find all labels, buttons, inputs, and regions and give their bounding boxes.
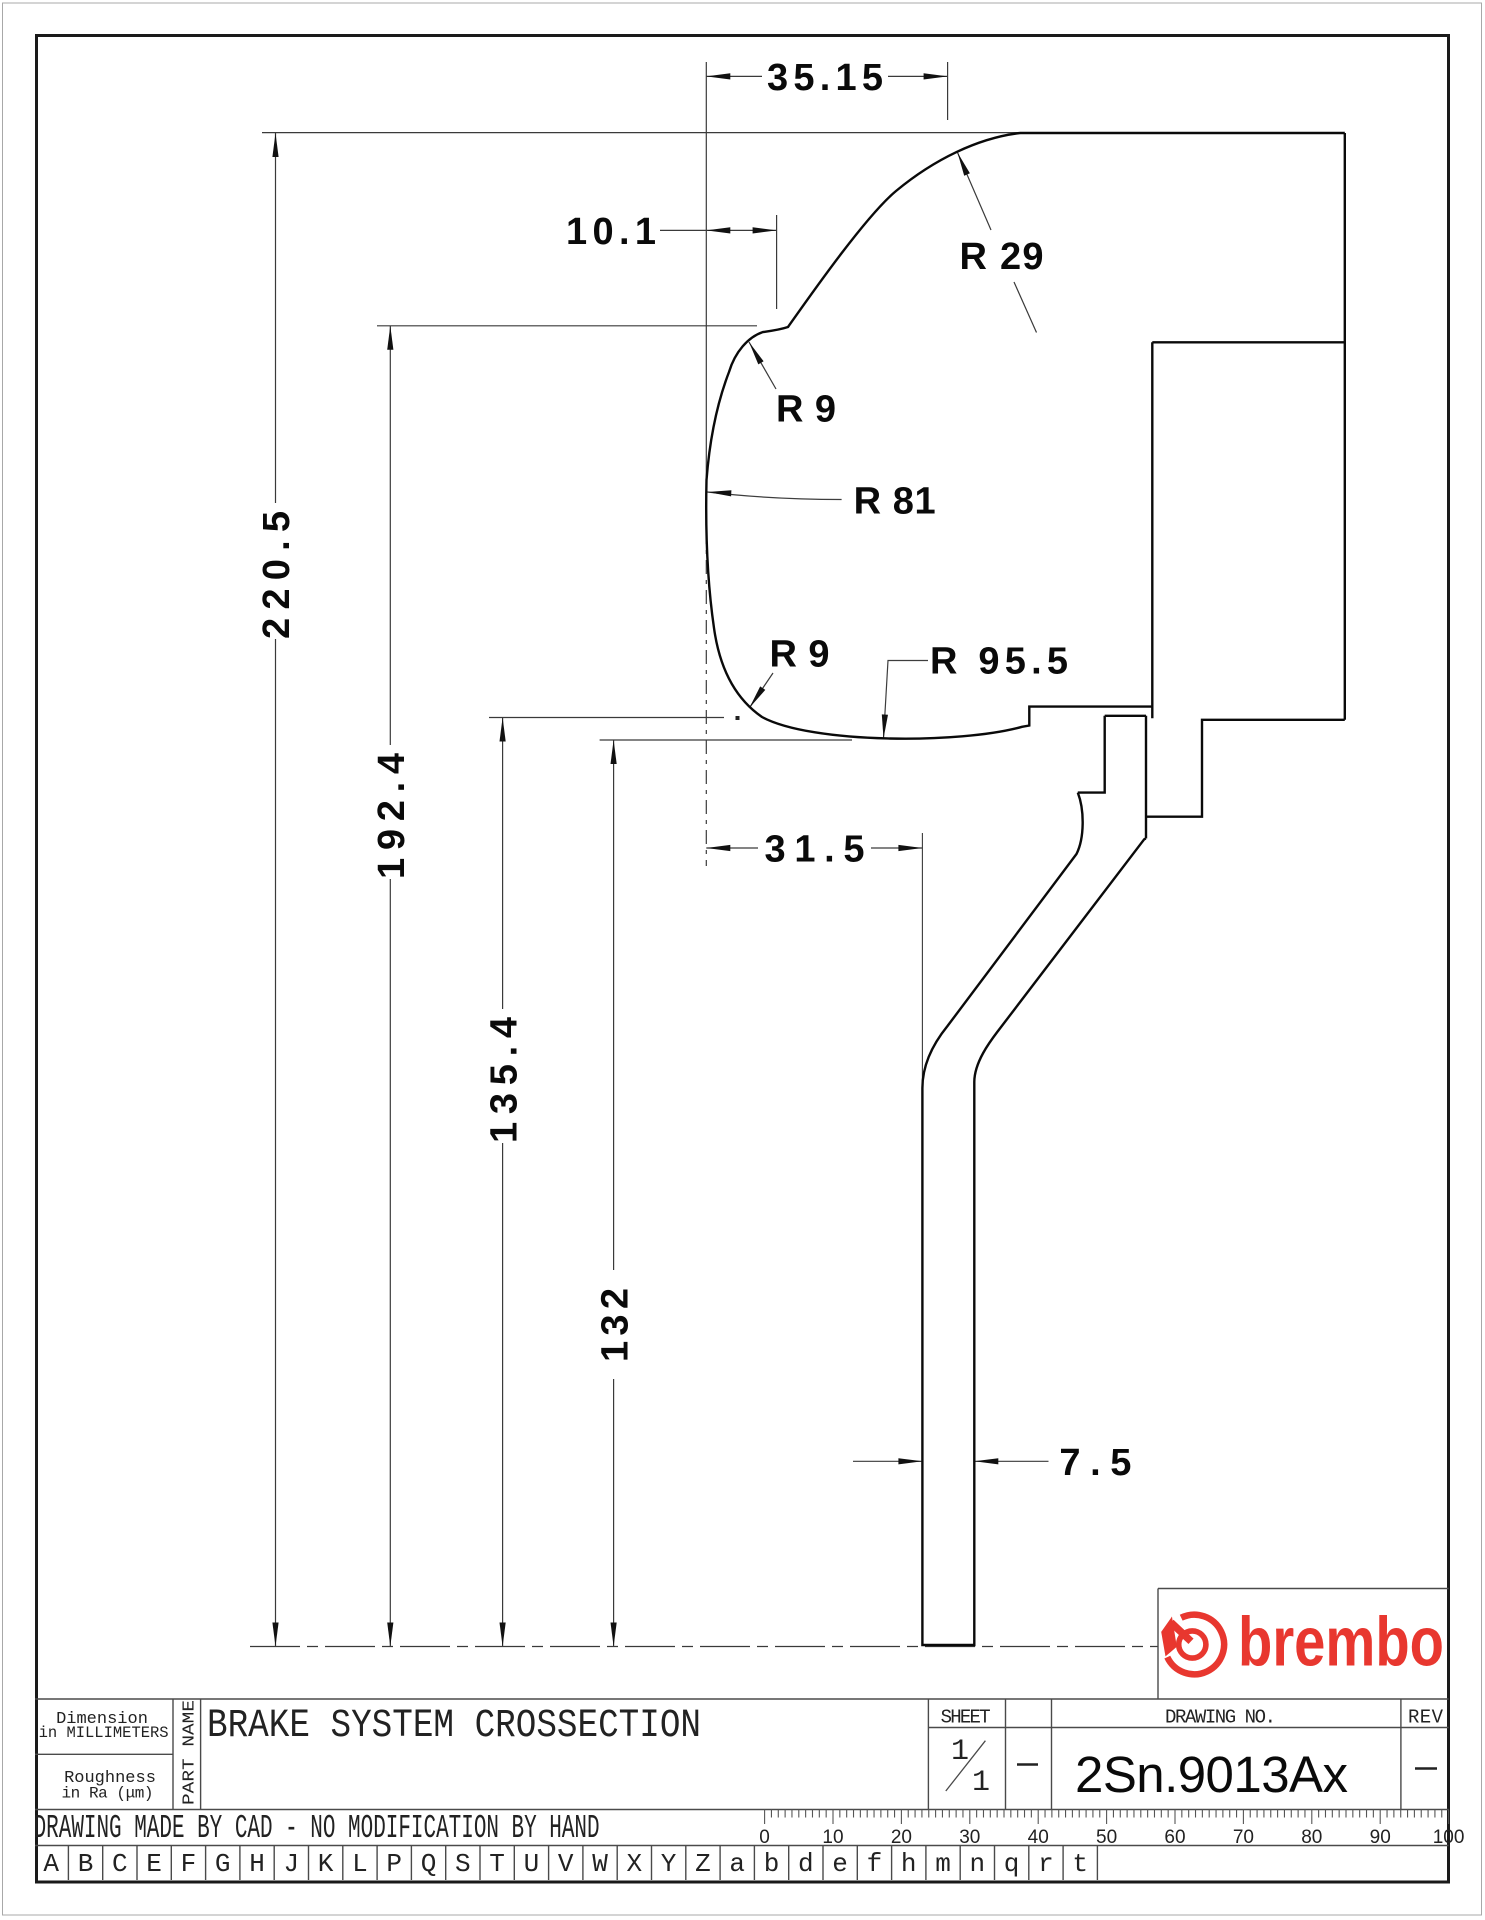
svg-text:T: T	[489, 1849, 505, 1879]
svg-text:R 95.5: R 95.5	[930, 641, 1068, 683]
svg-text:R 9: R 9	[776, 389, 836, 431]
svg-text:brembo: brembo	[1238, 1603, 1444, 1681]
svg-text:30: 30	[959, 1827, 980, 1848]
svg-text:70: 70	[1233, 1827, 1254, 1848]
svg-text:7.5: 7.5	[1059, 1442, 1131, 1484]
svg-text:L: L	[352, 1849, 368, 1879]
svg-text:132: 132	[594, 1288, 636, 1362]
svg-text:F: F	[181, 1849, 197, 1879]
svg-text:BRAKE SYSTEM CROSSECTION: BRAKE SYSTEM CROSSECTION	[207, 1704, 701, 1749]
svg-text:Q: Q	[421, 1849, 437, 1879]
svg-text:90: 90	[1370, 1827, 1391, 1848]
svg-text:A: A	[43, 1849, 59, 1879]
svg-text:C: C	[112, 1849, 128, 1879]
svg-text:U: U	[524, 1849, 540, 1879]
svg-text:PART NAME: PART NAME	[181, 1700, 200, 1805]
svg-text:R 9: R 9	[770, 634, 830, 676]
svg-text:100: 100	[1433, 1827, 1465, 1848]
svg-text:50: 50	[1096, 1827, 1117, 1848]
svg-text:1: 1	[972, 1766, 990, 1800]
svg-text:r: r	[1038, 1849, 1054, 1879]
svg-text:31.5: 31.5	[765, 829, 865, 871]
svg-text:135.4: 135.4	[483, 1017, 525, 1143]
svg-text:B: B	[78, 1849, 94, 1879]
svg-text:DRAWING MADE BY CAD - NO MODIF: DRAWING MADE BY CAD - NO MODIFICATION BY…	[34, 1810, 600, 1847]
svg-text:DRAWING NO.: DRAWING NO.	[1165, 1707, 1276, 1729]
svg-text:in Ra (μm): in Ra (μm)	[62, 1785, 154, 1803]
svg-text:35.15: 35.15	[767, 57, 883, 99]
svg-text:n: n	[969, 1849, 985, 1879]
svg-text:a: a	[729, 1849, 745, 1879]
svg-text:K: K	[318, 1849, 334, 1879]
svg-text:H: H	[249, 1849, 265, 1879]
svg-text:V: V	[558, 1849, 574, 1879]
svg-text:P: P	[386, 1849, 402, 1879]
svg-text:t: t	[1072, 1849, 1088, 1879]
svg-text:R 29: R 29	[960, 236, 1044, 278]
svg-text:R 81: R 81	[854, 480, 936, 522]
svg-text:e: e	[832, 1849, 848, 1879]
svg-text:q: q	[1004, 1849, 1020, 1879]
svg-text:192.4: 192.4	[371, 753, 413, 879]
svg-text:60: 60	[1164, 1827, 1185, 1848]
svg-text:40: 40	[1028, 1827, 1049, 1848]
svg-text:X: X	[626, 1849, 642, 1879]
svg-text:Y: Y	[661, 1849, 677, 1879]
svg-text:SHEET: SHEET	[941, 1707, 991, 1729]
svg-text:Z: Z	[695, 1849, 711, 1879]
svg-text:m: m	[935, 1849, 951, 1879]
svg-text:E: E	[146, 1849, 162, 1879]
svg-text:h: h	[901, 1849, 917, 1879]
svg-text:W: W	[592, 1849, 608, 1879]
svg-text:REV: REV	[1408, 1707, 1444, 1729]
svg-text:d: d	[798, 1849, 814, 1879]
svg-text:0: 0	[759, 1827, 770, 1848]
svg-text:80: 80	[1301, 1827, 1322, 1848]
svg-text:b: b	[764, 1849, 780, 1879]
svg-text:220.5: 220.5	[256, 511, 298, 639]
svg-text:10.1: 10.1	[566, 211, 656, 253]
svg-text:20: 20	[891, 1827, 912, 1848]
svg-text:G: G	[215, 1849, 231, 1879]
svg-text:f: f	[867, 1849, 883, 1879]
svg-text:in MILLIMETERS: in MILLIMETERS	[39, 1724, 169, 1742]
svg-text:10: 10	[822, 1827, 843, 1848]
svg-text:J: J	[283, 1849, 299, 1879]
svg-text:S: S	[455, 1849, 471, 1879]
svg-text:2Sn.9013Ax: 2Sn.9013Ax	[1075, 1746, 1348, 1803]
